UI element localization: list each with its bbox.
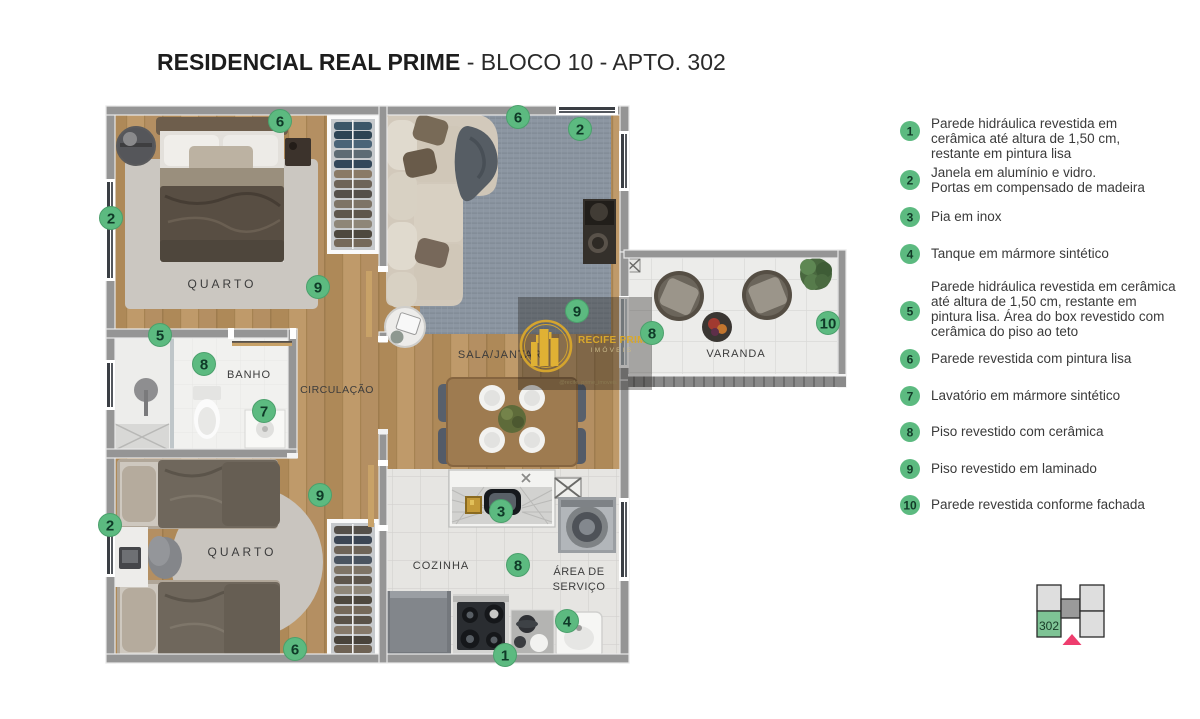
svg-text:9: 9: [314, 280, 322, 297]
svg-text:5: 5: [907, 305, 914, 319]
svg-text:CIRCULAÇÃO: CIRCULAÇÃO: [300, 383, 374, 396]
svg-text:5: 5: [156, 328, 164, 345]
svg-text:Janela em alumínio e vidro.: Janela em alumínio e vidro.: [931, 165, 1096, 180]
svg-text:9: 9: [573, 304, 581, 321]
svg-text:9: 9: [316, 488, 324, 505]
svg-text:cerâmica do piso ao teto: cerâmica do piso ao teto: [931, 324, 1078, 339]
svg-text:2: 2: [576, 122, 584, 139]
svg-text:8: 8: [648, 326, 656, 343]
svg-text:10: 10: [903, 499, 917, 513]
svg-text:Pia em inox: Pia em inox: [931, 209, 1002, 224]
svg-text:Lavatório em mármore sintético: Lavatório em mármore sintético: [931, 388, 1120, 403]
svg-text:2: 2: [107, 211, 115, 228]
svg-text:VARANDA: VARANDA: [706, 348, 765, 360]
svg-text:Piso revestido com cerâmica: Piso revestido com cerâmica: [931, 424, 1104, 439]
svg-text:1: 1: [501, 648, 509, 665]
svg-text:2: 2: [106, 518, 114, 535]
svg-text:8: 8: [200, 357, 208, 374]
svg-text:9: 9: [907, 463, 914, 477]
svg-text:COZINHA: COZINHA: [413, 560, 470, 572]
svg-text:ÁREA DE: ÁREA DE: [553, 565, 604, 578]
svg-text:até altura de 1,50 cm, restant: até altura de 1,50 cm, restante em: [931, 294, 1137, 309]
svg-text:8: 8: [907, 426, 914, 440]
svg-text:1: 1: [907, 125, 914, 139]
svg-text:restante em pintura lisa: restante em pintura lisa: [931, 146, 1072, 161]
svg-text:6: 6: [514, 110, 522, 127]
svg-text:BANHO: BANHO: [227, 369, 271, 381]
svg-text:Piso revestido em laminado: Piso revestido em laminado: [931, 461, 1097, 476]
svg-text:IMÓVEIS: IMÓVEIS: [591, 345, 634, 354]
svg-text:Parede hidráulica revestida em: Parede hidráulica revestida em: [931, 116, 1117, 131]
svg-text:SERVIÇO: SERVIÇO: [553, 581, 606, 593]
svg-text:Parede hidráulica revestida em: Parede hidráulica revestida em cerâmica: [931, 279, 1176, 294]
svg-text:3: 3: [497, 504, 505, 521]
svg-text:@recife_prime_imoveis: @recife_prime_imoveis: [559, 380, 617, 386]
svg-text:4: 4: [563, 614, 572, 631]
svg-text:2: 2: [907, 174, 914, 188]
svg-text:6: 6: [291, 642, 299, 659]
svg-text:Tanque em mármore sintético: Tanque em mármore sintético: [931, 246, 1109, 261]
svg-text:3: 3: [907, 211, 914, 225]
svg-text:7: 7: [907, 390, 914, 404]
svg-text:RESIDENCIAL REAL PRIME - BLOCO: RESIDENCIAL REAL PRIME - BLOCO 10 - APTO…: [157, 49, 726, 75]
svg-text:QUARTO: QUARTO: [208, 545, 277, 559]
svg-text:Parede revestida com pintura l: Parede revestida com pintura lisa: [931, 351, 1132, 366]
svg-text:10: 10: [820, 316, 837, 333]
svg-text:pintura lisa. Área do box reve: pintura lisa. Área do box revestido com: [931, 309, 1164, 324]
svg-text:6: 6: [276, 114, 284, 131]
svg-text:4: 4: [907, 248, 914, 262]
svg-text:Parede revestida conforme fach: Parede revestida conforme fachada: [931, 497, 1145, 512]
svg-text:6: 6: [907, 353, 914, 367]
svg-text:cerâmica até altura de 1,50 cm: cerâmica até altura de 1,50 cm,: [931, 131, 1120, 146]
svg-text:302: 302: [1039, 619, 1059, 633]
svg-text:Portas em compensado de madeir: Portas em compensado de madeira: [931, 180, 1145, 195]
svg-text:7: 7: [260, 404, 268, 421]
svg-text:8: 8: [514, 558, 522, 575]
svg-text:QUARTO: QUARTO: [188, 277, 257, 291]
